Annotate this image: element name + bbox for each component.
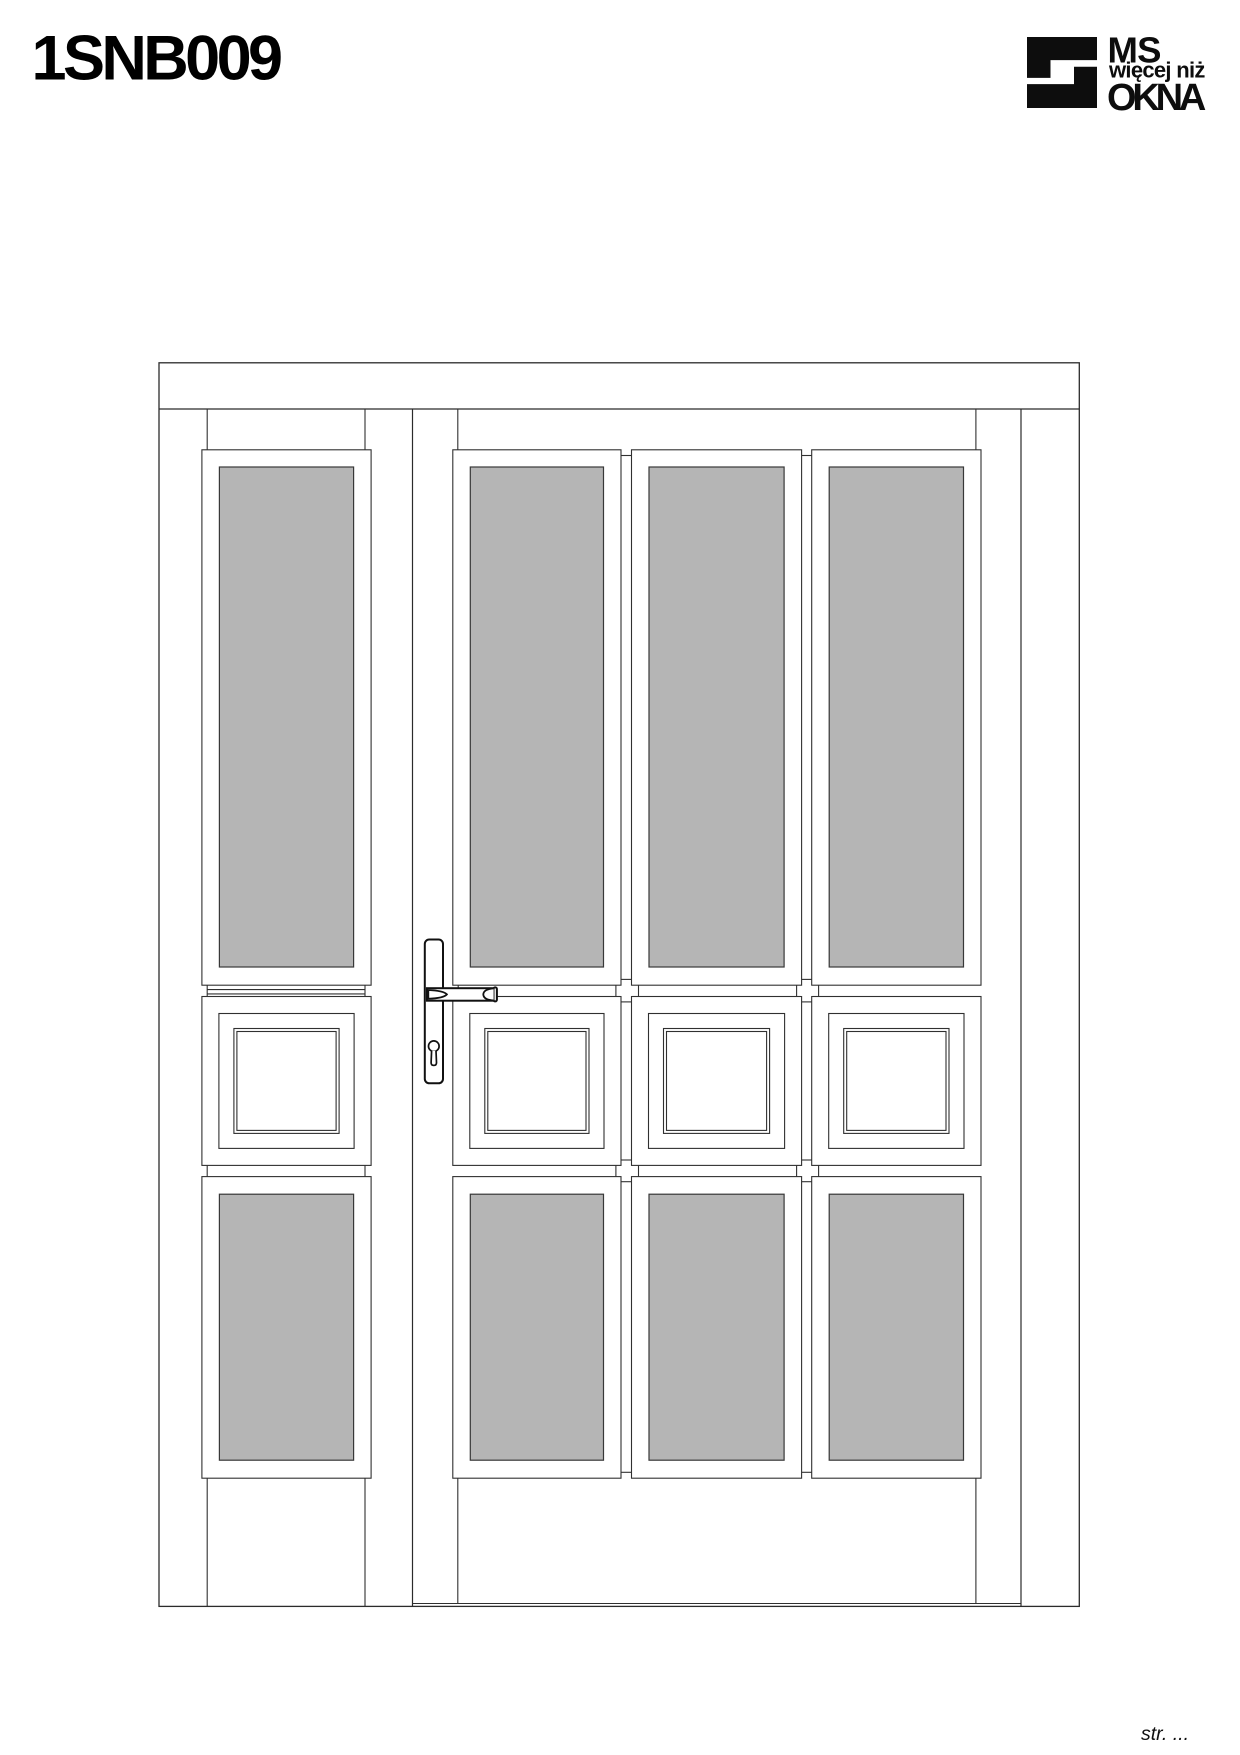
svg-text:OKNA: OKNA xyxy=(1107,77,1206,119)
svg-text:1SNB009: 1SNB009 xyxy=(32,23,282,93)
svg-text:str. ...: str. ... xyxy=(1141,1723,1189,1745)
